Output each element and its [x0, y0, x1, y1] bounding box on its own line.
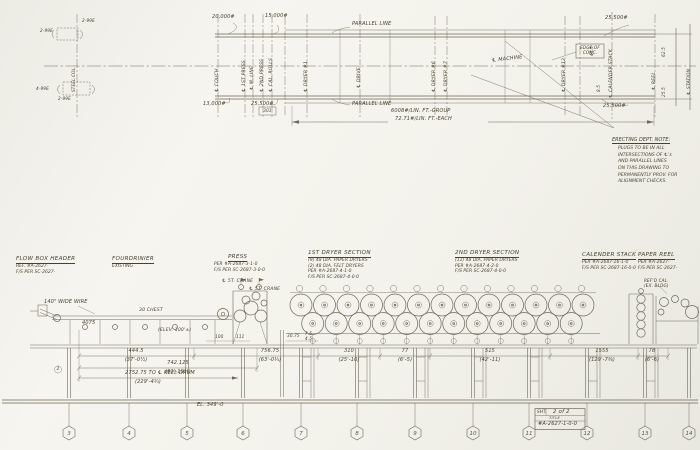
ground-elev-label: EL. 349'-0	[197, 403, 224, 409]
section-line: (11) 48 DIA. PAPER DRYERS	[455, 258, 519, 264]
dim-value: 1555	[595, 349, 608, 355]
dim-value: 444.5	[128, 349, 143, 355]
dim-feet: (37'-0½)	[125, 358, 148, 364]
parallel-line-label: PARALLEL LINE	[352, 102, 391, 108]
centerline-label: ℄ DRYER #12	[562, 58, 567, 92]
section-header-2nd-dryer: 2ND DRYER SECTION (11) 48 DIA. PAPER DRY…	[455, 239, 519, 275]
column-marker-number: 12	[584, 431, 591, 437]
dim-value: 310	[344, 349, 354, 355]
centerline-label: ℄ CALENDER STACK	[609, 49, 614, 98]
section-title: FLOW BOX HEADER	[16, 256, 75, 264]
column-marker-number: 9	[413, 431, 417, 437]
small-dim: 4.5	[305, 337, 312, 342]
weight-label: 25,500#	[251, 102, 274, 108]
section-title: CALENDER STACK	[582, 252, 636, 260]
load-per-foot-group: 6008#/LIN. FT.-GROUP	[391, 109, 450, 115]
plan-small-dim: 62.5	[662, 47, 667, 57]
centerline-label: ℄ CAL. ROLLS	[269, 58, 274, 92]
section-line: EXISTING	[112, 264, 154, 270]
column-marker-number: 7	[299, 431, 303, 437]
weight-label: 25,500#	[605, 16, 628, 22]
dim-feet: (229'-4¾)	[135, 380, 161, 386]
titleblock-sht-label: SHT.	[537, 410, 547, 415]
dim-4075: 4075	[82, 321, 95, 327]
crane-label: ℄ 5T. CRANE	[222, 279, 253, 284]
drawing-linework: 34567891011121314	[0, 0, 700, 450]
section-header-calender: CALENDER STACK PER #A-2687-16-1-0 F/S PE…	[582, 241, 636, 271]
centerline-label: ℄ 2ND PRESS	[260, 59, 265, 92]
section-line: F/S PER SC-2627-	[16, 270, 75, 276]
centerline-label: ℄ STATION	[687, 69, 692, 95]
dim-value: 742.125	[167, 361, 189, 367]
section-line: PER #A-2687-3-1-0	[214, 262, 265, 268]
section-line: (9) 48 DIA. PAPER DRYERS	[308, 258, 371, 264]
section-line: F/S PER SC-2687-16-0-0	[582, 266, 636, 272]
section-title: PAPER REEL	[638, 252, 675, 260]
elevation-view-lines	[2, 278, 699, 403]
parallel-line-label: PARALLEL LINE	[352, 22, 391, 28]
section-title: 1ST DRYER SECTION	[308, 250, 371, 258]
plan-view-lines	[44, 12, 696, 128]
detail-label: 2-99E	[58, 97, 71, 102]
dim-feet: (63'-0¾)	[259, 358, 282, 364]
centerline-label: ℄ REEL	[652, 72, 657, 90]
small-dim: 111	[236, 335, 244, 340]
section-header-press: PRESS PER #A-2687-3-1-0 F/S PER SC-2687-…	[214, 243, 265, 273]
erecting-dept-note: ERECTING DEPT. NOTE: PLUGS TO BE IN ALL …	[612, 126, 698, 186]
note-line: ALIGNMENT CHECKS.	[618, 179, 698, 186]
section-title: PRESS	[228, 254, 247, 262]
note-line: AND PARALLEL LINES	[618, 159, 698, 166]
plan-small-dim: 25.5	[662, 87, 667, 97]
dim-feet: (129'-7⅜)	[589, 358, 615, 364]
section-header-reel: PAPER REEL PER #A-2627- F/S PER SC-2627-	[638, 241, 677, 271]
plan-small-dim: 8.5	[597, 85, 602, 92]
dim-feet: (42'-11)	[479, 358, 500, 364]
section-title: 2ND DRYER SECTION	[455, 250, 519, 258]
chest-label: 30 CHEST	[139, 308, 163, 313]
section-header-flowbox: FLOW BOX HEADER REF. #A-2627- F/S PER SC…	[16, 245, 75, 275]
dim-value: 756.75	[261, 349, 279, 355]
dim-feet: (6'-5)	[398, 358, 412, 364]
detail-label: 2-99E	[82, 19, 95, 24]
circled-ref-2: 2	[57, 367, 60, 372]
dim-value: 2752.75 TO ℄ REEL DRUM	[125, 371, 195, 377]
weight-label: 13,000#	[203, 102, 226, 108]
centerline-label: ℄ M. LINE	[250, 66, 255, 90]
small-dim: 30.75	[287, 334, 300, 339]
note-line: PLUGS TO BE IN ALL	[618, 146, 698, 153]
note-line: ON THIS DRAWING TO	[618, 166, 698, 173]
centerline-label: ℄ DRYER #7	[444, 61, 449, 92]
titleblock-drawing-number: #A-2627-1-0-0	[538, 422, 577, 428]
section-line: F/S PER SC-2687-4-0-0	[308, 275, 371, 281]
column-marker-number: 10	[470, 431, 477, 437]
weight-label: 20,000#	[212, 15, 235, 21]
centerline-label: ℄ DRIVE	[357, 67, 362, 88]
dim-feet: (6'-6)	[645, 358, 659, 364]
column-marker-number: 4	[127, 431, 131, 437]
titleblock-sheet-number: 2 of 2	[553, 409, 570, 415]
column-marker-number: 8	[355, 431, 359, 437]
small-dim: 100	[215, 335, 223, 340]
plan-small-dim: 45.5	[590, 46, 595, 56]
weight-label: 25,500#	[603, 104, 626, 110]
section-header-fourdrinier: FOURDRINIER EXISTING	[112, 245, 154, 270]
detail-label: 2-99E	[40, 29, 53, 34]
centerline-label: ℄ DRYER #6	[432, 61, 437, 92]
centerline-label: ℄ COUCH	[215, 69, 220, 92]
steel-col-label: STEEL COL.	[72, 66, 77, 92]
ex-bldg-label: (EX. BLDG)	[644, 284, 669, 289]
detail-label: 4-99E	[36, 87, 49, 92]
section-title: FOURDRINIER	[112, 256, 154, 264]
dim-feet: (25'-10)	[338, 358, 359, 364]
wire-width-label: 140" WIDE WIRE	[44, 300, 88, 306]
section-line: F/S PER SC-2687-4-0-0	[455, 269, 519, 275]
box-301-label: 301	[260, 109, 276, 114]
section-line: F/S PER SC-2687-3-0-0	[214, 268, 265, 274]
section-line: F/S PER SC-2627-	[638, 266, 677, 272]
dim-value: 78	[649, 349, 656, 355]
column-marker-number: 3	[67, 431, 71, 437]
section-header-1st-dryer: 1ST DRYER SECTION (9) 48 DIA. PAPER DRYE…	[308, 239, 371, 281]
weight-label: 15,000#	[265, 14, 288, 20]
dim-value: 77	[402, 349, 409, 355]
floor-elev-label: (ELEV. 100'±)	[158, 328, 191, 333]
column-marker-number: 5	[185, 431, 189, 437]
centerline-label: ℄ 1ST PRESS	[242, 60, 247, 92]
column-marker-number: 14	[686, 431, 693, 437]
section-line: PER #A-2687-16-1-0	[582, 260, 636, 266]
dim-value: 515	[485, 349, 495, 355]
centerline-label: ℄ DRYER #1	[304, 61, 309, 92]
column-marker-number: 6	[241, 431, 245, 437]
column-marker-number: 13	[642, 431, 649, 437]
titleblock-title-word: TITLE	[549, 416, 560, 420]
column-marker-number: 11	[526, 431, 533, 437]
load-per-foot-each: 72.71#/LIN. FT.-EACH	[395, 117, 452, 123]
blueprint-sheet: 34567891011121314 20,000# 15,000# 13,000…	[0, 0, 700, 450]
crane-label: ℄ 5T. CRANE	[249, 287, 280, 292]
note-title: ERECTING DEPT. NOTE:	[612, 137, 670, 144]
